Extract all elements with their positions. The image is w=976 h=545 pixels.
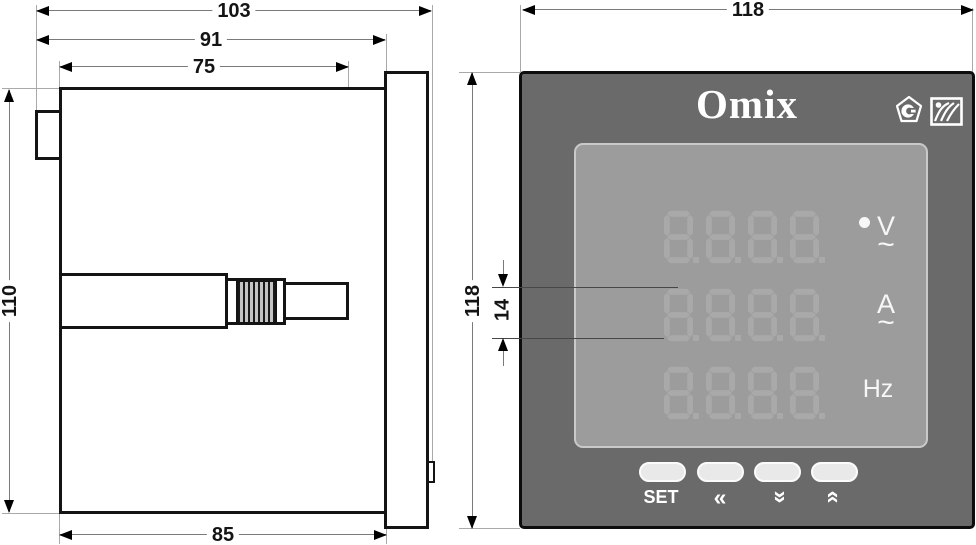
dimension-tail — [503, 260, 504, 275]
arrowhead-up-icon — [467, 72, 477, 85]
mounting-bracket-arm — [59, 273, 228, 329]
arrowhead-left-icon — [59, 62, 72, 72]
seven-segment-digit — [706, 210, 748, 264]
decimal-point — [735, 335, 741, 341]
knurled-thumbscrew — [236, 280, 277, 324]
arrowhead-down-icon — [498, 274, 508, 287]
dimension-total-depth: 103 — [36, 5, 432, 17]
arrowhead-right-icon — [419, 6, 432, 16]
dimension-panel-height: 118 — [467, 72, 479, 529]
down-button[interactable] — [754, 462, 801, 482]
arrowhead-left-icon — [36, 35, 49, 45]
dimension-value: 75 — [188, 56, 220, 78]
technical-drawing-canvas: 103 91 75 85 110 — [0, 0, 976, 545]
arrowhead-right-icon — [336, 62, 349, 72]
arrowhead-left-icon — [59, 530, 72, 540]
dimension-body-depth: 85 — [59, 529, 387, 541]
extension-line — [36, 5, 37, 111]
decimal-point — [777, 335, 783, 341]
dimension-bracket-length: 75 — [59, 61, 349, 73]
callout-line — [492, 338, 664, 339]
decimal-point — [693, 413, 699, 419]
display-row-frequency — [664, 366, 832, 420]
decimal-point — [735, 257, 741, 263]
extension-line — [386, 34, 387, 74]
seven-segment-digit — [664, 210, 706, 264]
extension-line — [2, 513, 60, 514]
ac-tilde-icon: ~ — [869, 239, 903, 251]
seven-segment-digit — [748, 210, 790, 264]
arrowhead-up-icon — [4, 89, 14, 102]
lcd-display: V ~ A ~ Hz — [574, 143, 928, 448]
set-button-label: SET — [631, 486, 691, 508]
seven-segment-digit — [706, 288, 748, 342]
ac-tilde-icon: ~ — [869, 317, 903, 329]
dimension-depth-behind-bezel: 91 — [36, 34, 386, 46]
seven-segment-digit — [664, 288, 706, 342]
dimension-value: 14 — [492, 296, 515, 324]
arrowhead-left-icon — [522, 5, 535, 15]
dimension-value: 85 — [207, 524, 239, 545]
unit-frequency: Hz — [861, 377, 895, 402]
double-down-chevron-icon: « — [766, 491, 788, 504]
decimal-point — [693, 257, 699, 263]
arrowhead-right-icon — [374, 530, 387, 540]
dimension-value: 110 — [0, 280, 21, 322]
unit-label: Hz — [861, 377, 895, 402]
extension-line — [432, 5, 433, 461]
mounting-bracket-extension — [283, 282, 349, 320]
decimal-point — [777, 413, 783, 419]
meter-front-panel: Omix — [519, 71, 975, 529]
arrowhead-right-icon — [961, 5, 974, 15]
display-row-current — [664, 288, 832, 342]
unit-current: A ~ — [869, 291, 903, 329]
dimension-value: 118 — [462, 279, 484, 321]
unit-voltage: V ~ — [869, 213, 903, 251]
arrowhead-down-icon — [4, 500, 14, 513]
dimension-panel-width: 118 — [522, 4, 974, 16]
seven-segment-digit — [748, 288, 790, 342]
decimal-point — [693, 335, 699, 341]
decimal-point — [777, 257, 783, 263]
down-label: « — [747, 486, 807, 508]
seven-segment-digit — [790, 288, 832, 342]
dimension-value: 91 — [195, 29, 227, 51]
callout-line — [492, 287, 678, 288]
certification-pentagon-icon — [894, 95, 924, 125]
decimal-point — [735, 413, 741, 419]
arrowhead-right-icon — [373, 35, 386, 45]
dimension-tail — [503, 351, 504, 366]
extension-line — [972, 8, 973, 72]
decimal-point — [819, 413, 825, 419]
seven-segment-digit — [664, 366, 706, 420]
up-button[interactable] — [811, 462, 858, 482]
arrowhead-down-icon — [467, 516, 477, 529]
dimension-value: 103 — [212, 0, 255, 22]
front-bezel-outline — [384, 71, 429, 529]
display-row-voltage — [664, 210, 832, 264]
seven-segment-digit — [748, 366, 790, 420]
dimension-value: 118 — [727, 0, 769, 21]
shift-left-label: « — [690, 486, 750, 508]
seven-segment-digit — [790, 210, 832, 264]
decimal-point — [819, 257, 825, 263]
arrowhead-left-icon — [36, 6, 49, 16]
seven-segment-digit — [706, 366, 748, 420]
arrowhead-up-icon — [498, 338, 508, 351]
quality-mark-square-icon — [930, 97, 963, 126]
double-up-chevron-icon: « — [823, 491, 845, 504]
decimal-point — [819, 335, 825, 341]
up-label: « — [804, 486, 864, 508]
terminal-block-outline — [35, 110, 62, 160]
shift-left-button[interactable] — [697, 462, 744, 482]
rear-tab-outline — [427, 461, 435, 483]
set-button[interactable] — [639, 462, 686, 482]
dimension-body-height: 110 — [4, 89, 16, 513]
extension-line — [520, 5, 521, 72]
seven-segment-digit — [790, 366, 832, 420]
